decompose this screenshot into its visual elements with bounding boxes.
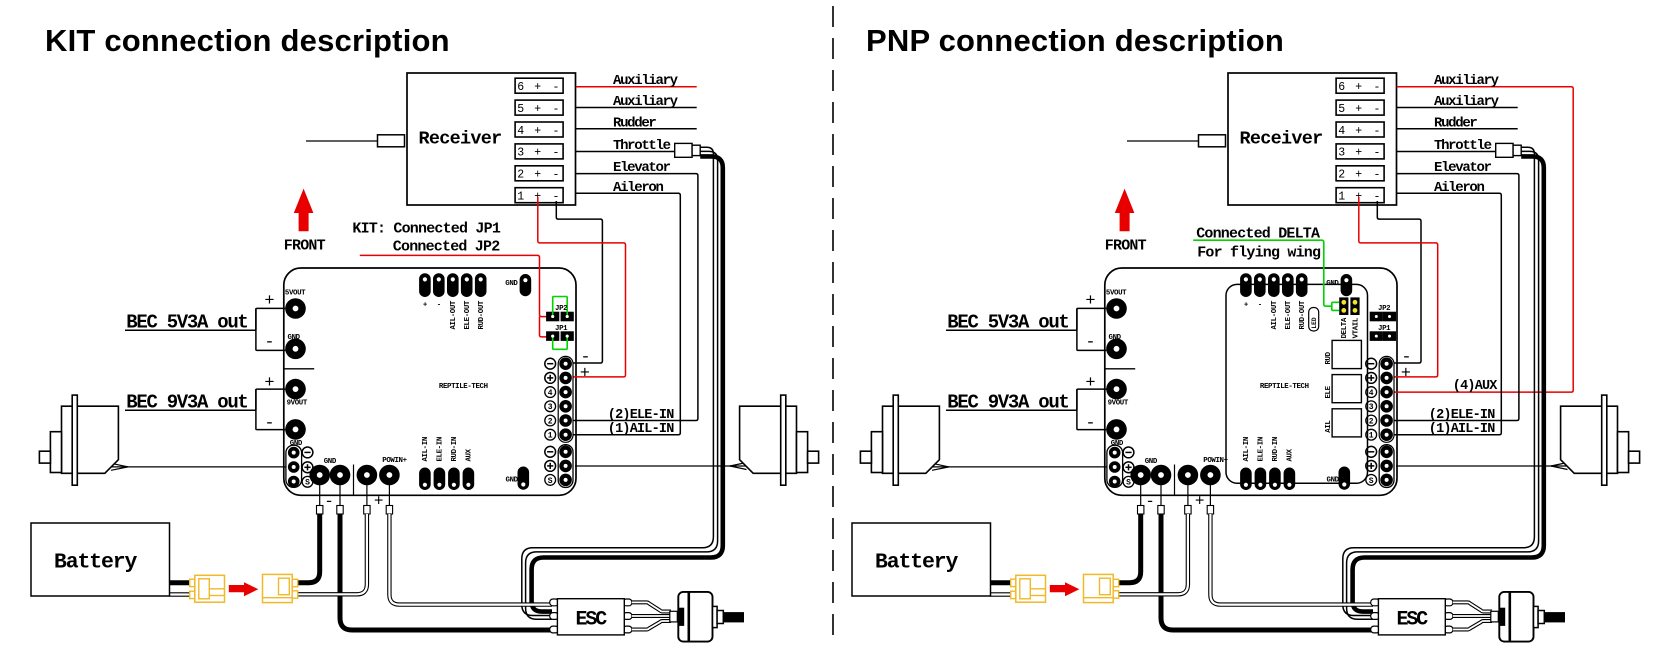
svg-text:Auxiliary: Auxiliary: [613, 94, 679, 110]
svg-text:FRONT: FRONT: [1105, 238, 1147, 255]
svg-text:Connected DELTA: Connected DELTA: [1196, 225, 1320, 242]
svg-text:-: -: [553, 103, 560, 116]
svg-text:-: -: [1145, 493, 1155, 511]
svg-text:AIL-IN: AIL-IN: [1243, 437, 1251, 461]
svg-text:Rudder: Rudder: [1434, 115, 1477, 131]
svg-text:2: 2: [517, 169, 524, 182]
svg-text:5VOUT: 5VOUT: [285, 289, 306, 297]
svg-text:-: -: [264, 415, 274, 434]
svg-text:9VOUT: 9VOUT: [287, 400, 308, 408]
svg-text:6: 6: [517, 81, 524, 94]
svg-text:KIT: Connected JP1: KIT: Connected JP1: [352, 220, 500, 237]
svg-text:Elevator: Elevator: [613, 160, 671, 176]
svg-text:3: 3: [1369, 403, 1374, 412]
svg-text:4: 4: [1369, 389, 1374, 398]
svg-text:+: +: [534, 169, 541, 182]
svg-text:+: +: [534, 125, 541, 138]
svg-text:Rudder: Rudder: [613, 115, 656, 131]
svg-text:+: +: [580, 364, 590, 383]
svg-text:ELE-OUT: ELE-OUT: [1285, 300, 1293, 329]
svg-text:(2)ELE-IN: (2)ELE-IN: [1429, 408, 1495, 423]
svg-text:Throttle: Throttle: [1434, 138, 1492, 154]
svg-text:RUD-OUT: RUD-OUT: [1299, 300, 1307, 329]
svg-text:-: -: [1258, 302, 1262, 310]
svg-text:(2)ELE-IN: (2)ELE-IN: [608, 408, 674, 423]
svg-text:REPTILE-TECH: REPTILE-TECH: [1260, 383, 1309, 391]
svg-text:ELE-IN: ELE-IN: [437, 437, 445, 461]
svg-text:-: -: [553, 147, 560, 160]
svg-text:Aileron: Aileron: [613, 180, 663, 196]
svg-text:1: 1: [1369, 432, 1374, 441]
svg-text:AIL-IN: AIL-IN: [422, 437, 430, 461]
svg-text:ESC: ESC: [576, 608, 608, 631]
svg-text:DELTA: DELTA: [1341, 317, 1349, 338]
svg-text:KIT connection description: KIT connection description: [45, 23, 450, 58]
svg-text:Auxiliary: Auxiliary: [613, 73, 679, 89]
svg-text:+: +: [534, 147, 541, 160]
svg-text:-: -: [553, 169, 560, 182]
svg-text:PNP connection description: PNP connection description: [866, 23, 1284, 58]
svg-text:+: +: [1085, 292, 1095, 311]
svg-text:1: 1: [548, 432, 553, 441]
svg-text:3: 3: [517, 147, 524, 160]
svg-text:2: 2: [1338, 169, 1345, 182]
svg-text:1: 1: [517, 191, 524, 204]
svg-text:GND: GND: [1326, 280, 1339, 288]
svg-text:-: -: [553, 81, 560, 94]
svg-text:3: 3: [548, 403, 553, 412]
svg-text:+: +: [1355, 81, 1362, 94]
svg-text:RUD: RUD: [1325, 351, 1333, 364]
svg-text:RUD-IN: RUD-IN: [451, 437, 459, 461]
svg-text:S: S: [1369, 477, 1374, 486]
svg-text:-: -: [324, 493, 334, 511]
svg-text:-: -: [1085, 334, 1095, 353]
svg-text:(1)AIL-IN: (1)AIL-IN: [608, 422, 674, 437]
svg-text:Battery: Battery: [875, 551, 959, 575]
svg-text:FRONT: FRONT: [284, 238, 326, 255]
svg-text:-: -: [1085, 415, 1095, 434]
svg-text:GND: GND: [1145, 458, 1158, 466]
svg-text:GND: GND: [505, 280, 518, 288]
svg-text:Connected JP2: Connected JP2: [393, 238, 500, 255]
svg-text:ELE-IN: ELE-IN: [1258, 437, 1266, 461]
svg-text:RUD-IN: RUD-IN: [1272, 437, 1280, 461]
svg-text:Throttle: Throttle: [613, 138, 671, 154]
svg-text:Auxiliary: Auxiliary: [1434, 94, 1500, 110]
svg-text:RUD-OUT: RUD-OUT: [478, 300, 486, 329]
svg-text:+: +: [1355, 125, 1362, 138]
svg-text:9VOUT: 9VOUT: [1108, 400, 1129, 408]
svg-text:4: 4: [548, 389, 553, 398]
svg-text:POWIN+: POWIN+: [1203, 457, 1228, 465]
svg-text:+: +: [374, 493, 384, 511]
svg-text:1: 1: [1338, 191, 1345, 204]
svg-text:VTAIL: VTAIL: [1352, 317, 1360, 338]
svg-text:GND: GND: [324, 458, 337, 466]
svg-text:Elevator: Elevator: [1434, 160, 1492, 176]
svg-text:GND: GND: [1327, 477, 1340, 485]
svg-text:5: 5: [517, 103, 524, 116]
svg-text:Receiver: Receiver: [1240, 129, 1323, 150]
svg-text:S: S: [1126, 479, 1131, 488]
svg-text:-: -: [1374, 103, 1381, 116]
svg-text:-: -: [553, 125, 560, 138]
svg-text:JP1: JP1: [555, 325, 568, 333]
svg-text:ELE: ELE: [1325, 385, 1333, 398]
svg-text:Receiver: Receiver: [419, 129, 502, 150]
svg-text:+: +: [1401, 364, 1411, 383]
svg-text:-: -: [1374, 147, 1381, 160]
svg-text:+: +: [264, 374, 274, 393]
svg-text:(1)AIL-IN: (1)AIL-IN: [1429, 422, 1495, 437]
svg-text:AIL: AIL: [1325, 420, 1333, 433]
svg-text:REPTILE-TECH: REPTILE-TECH: [439, 383, 488, 391]
svg-text:GND: GND: [506, 477, 519, 485]
svg-text:4: 4: [1338, 125, 1345, 138]
svg-text:-: -: [437, 302, 441, 310]
svg-text:3: 3: [1338, 147, 1345, 160]
svg-text:S: S: [548, 477, 553, 486]
svg-text:JP2: JP2: [555, 305, 567, 313]
svg-text:For flying wing: For flying wing: [1197, 244, 1321, 261]
svg-text:5VOUT: 5VOUT: [1106, 289, 1127, 297]
svg-text:AUX: AUX: [1287, 448, 1295, 461]
svg-text:LED: LED: [1311, 317, 1318, 328]
svg-text:AIL-OUT: AIL-OUT: [1271, 300, 1279, 329]
svg-text:Auxiliary: Auxiliary: [1434, 73, 1500, 89]
svg-text:AUX: AUX: [466, 448, 474, 461]
svg-text:ELE-OUT: ELE-OUT: [464, 300, 472, 329]
svg-text:-: -: [1374, 125, 1381, 138]
svg-text:AIL-OUT: AIL-OUT: [450, 300, 458, 329]
svg-text:4: 4: [517, 125, 524, 138]
svg-text:+: +: [534, 103, 541, 116]
svg-text:ESC: ESC: [1397, 608, 1429, 631]
svg-text:S: S: [305, 479, 310, 488]
svg-text:+: +: [1355, 103, 1362, 116]
svg-text:-: -: [1374, 169, 1381, 182]
svg-text:+: +: [534, 81, 541, 94]
svg-text:2: 2: [548, 417, 553, 426]
svg-text:+: +: [264, 292, 274, 311]
svg-text:5: 5: [1338, 103, 1345, 116]
svg-text:+: +: [1085, 374, 1095, 393]
svg-text:-: -: [1374, 81, 1381, 94]
svg-text:+: +: [1355, 169, 1362, 182]
svg-text:POWIN+: POWIN+: [382, 457, 407, 465]
svg-text:2: 2: [1369, 417, 1374, 426]
svg-text:Aileron: Aileron: [1434, 180, 1484, 196]
svg-text:(4)AUX: (4)AUX: [1453, 379, 1499, 394]
svg-text:+: +: [1195, 493, 1205, 511]
svg-text:+: +: [1355, 147, 1362, 160]
svg-text:Battery: Battery: [54, 551, 138, 575]
svg-text:-: -: [264, 334, 274, 353]
svg-text:6: 6: [1338, 81, 1345, 94]
